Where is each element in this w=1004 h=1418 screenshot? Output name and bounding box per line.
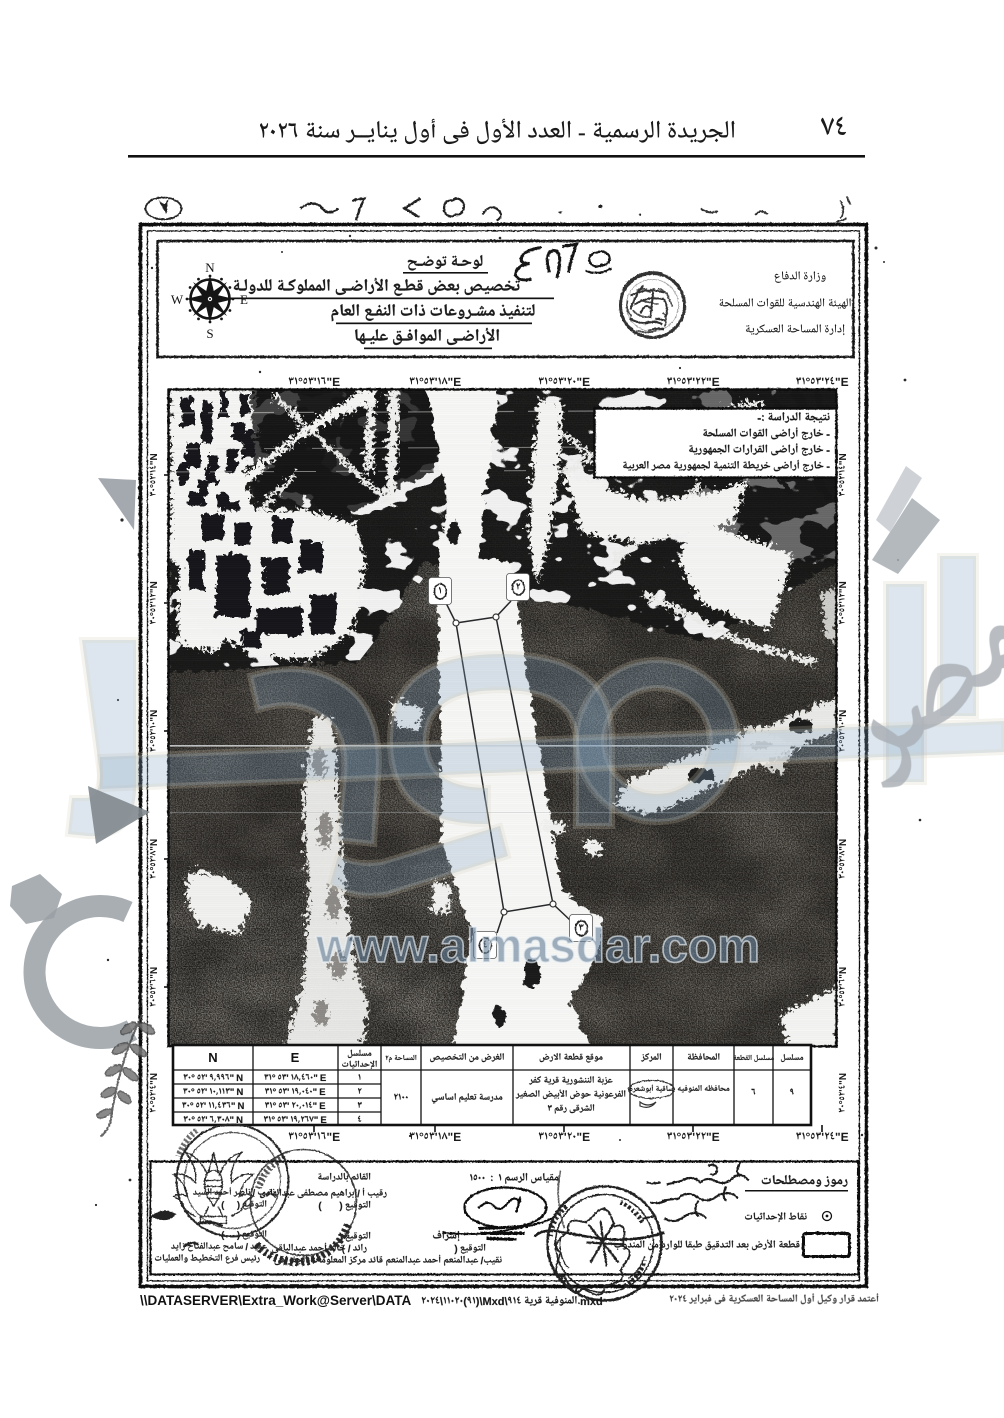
svg-text:www.almasdar.com: www.almasdar.com [315,920,760,973]
svg-text:N: N [205,260,215,275]
svg-text:W: W [171,292,184,307]
svg-text:N: N [208,1050,217,1065]
svg-text:\\DATASERVER\Extra_Work@Server: \\DATASERVER\Extra_Work@Server\DATA [140,1293,411,1308]
svg-text:S: S [206,326,213,341]
svg-text:E: E [291,1050,300,1065]
svg-text:E: E [240,292,248,307]
